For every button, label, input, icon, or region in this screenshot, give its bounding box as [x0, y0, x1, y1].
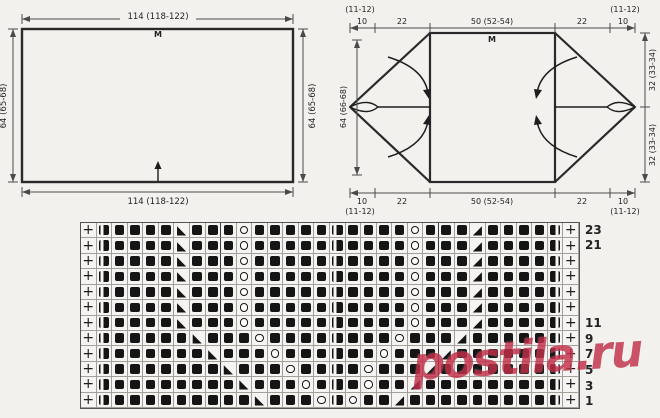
chart-cell: [268, 285, 284, 300]
filled-square: [395, 349, 405, 359]
filled-square: [348, 303, 358, 313]
filled-square: [317, 225, 327, 235]
chart-cell: [501, 300, 517, 315]
chart-cell: [159, 238, 175, 253]
filled-square: [208, 318, 218, 328]
chart-cell: [486, 393, 502, 408]
filled-square: [348, 256, 358, 266]
filled-square: [426, 303, 436, 313]
chart-cell: [377, 238, 393, 253]
filled-square: [441, 287, 451, 297]
chart-cell: [392, 285, 408, 300]
chart-cell: [252, 316, 268, 331]
half-filled-square-stripe-left: [99, 395, 110, 406]
chart-cell: [392, 254, 408, 269]
chart-cell: [517, 223, 533, 238]
open-circle: [271, 349, 280, 358]
top-size-note-left: (11-12): [345, 5, 375, 14]
filled-square: [161, 333, 171, 343]
filled-square: [441, 225, 451, 235]
filled-square: [348, 225, 358, 235]
chart-cell: [268, 223, 284, 238]
filled-square: [130, 364, 140, 374]
chart-cell: [330, 269, 346, 284]
chart-cell: [190, 346, 206, 361]
filled-square: [364, 395, 374, 405]
filled-square: [224, 380, 234, 390]
plus-edge-stitch: +: [82, 224, 94, 236]
chart-cell: [159, 331, 175, 346]
plus-edge-stitch: +: [82, 378, 94, 390]
flat-direction-arrow: [155, 161, 162, 181]
lower-right-black-triangle: ◢: [473, 225, 482, 235]
filled-square: [192, 318, 202, 328]
chart-cell: +: [81, 346, 97, 361]
chart-cell: [112, 269, 128, 284]
chart-cell: [501, 254, 517, 269]
plus-edge-stitch: +: [82, 255, 94, 267]
plus-edge-stitch: +: [565, 255, 577, 267]
chart-cell: [314, 254, 330, 269]
filled-square: [146, 395, 156, 405]
chart-row-number: [585, 253, 611, 269]
chart-cell: [486, 269, 502, 284]
chart-cell: [283, 254, 299, 269]
chart-cell: [517, 269, 533, 284]
fold-arrowheads: [423, 89, 542, 125]
chart-cell: [221, 393, 237, 408]
half-filled-square-stripe-right: [550, 287, 561, 298]
filled-square: [504, 272, 514, 282]
chart-cell: [532, 223, 548, 238]
filled-square: [504, 256, 514, 266]
filled-square: [270, 333, 280, 343]
chart-cell: ◢: [470, 300, 486, 315]
chart-cell: [455, 238, 471, 253]
chart-cell: [159, 285, 175, 300]
filled-square: [301, 349, 311, 359]
filled-square: [286, 287, 296, 297]
chart-cell: [237, 254, 253, 269]
chart-cell: [346, 377, 362, 392]
filled-square: [457, 303, 467, 313]
chart-cell: [174, 346, 190, 361]
chart-cell: [174, 331, 190, 346]
half-filled-square-stripe-right: [550, 317, 561, 328]
filled-square: [317, 303, 327, 313]
chart-cell: [159, 362, 175, 377]
chart-cell: [330, 316, 346, 331]
lower-left-black-triangle: ◣: [239, 379, 248, 389]
chart-cell: [408, 316, 424, 331]
chart-cell: [346, 300, 362, 315]
filled-square: [317, 256, 327, 266]
filled-square: [192, 380, 202, 390]
open-circle: [364, 365, 373, 374]
chart-cell: [455, 316, 471, 331]
filled-square: [130, 318, 140, 328]
filled-square: [224, 241, 234, 251]
chart-cell: [112, 300, 128, 315]
filled-square: [224, 395, 234, 405]
chart-cell: [408, 238, 424, 253]
open-circle: [349, 396, 358, 405]
filled-square: [239, 364, 249, 374]
chart-cell: [314, 238, 330, 253]
chart-cell: [330, 377, 346, 392]
chart-cell: [377, 300, 393, 315]
chart-cell: [361, 362, 377, 377]
filled-square: [270, 318, 280, 328]
filled-square: [255, 364, 265, 374]
filled-square: [535, 225, 545, 235]
chart-cell: [237, 346, 253, 361]
filled-square: [192, 256, 202, 266]
chart-cell: [221, 331, 237, 346]
chart-cell: [268, 269, 284, 284]
chart-cell: [143, 285, 159, 300]
filled-square: [364, 241, 374, 251]
filled-square: [208, 272, 218, 282]
filled-square: [255, 256, 265, 266]
chart-cell: [159, 223, 175, 238]
filled-square: [519, 318, 529, 328]
chart-cell: [377, 269, 393, 284]
lower-left-black-triangle: ◣: [193, 333, 202, 343]
chart-cell: [174, 362, 190, 377]
filled-square: [348, 272, 358, 282]
chart-cell: +: [81, 254, 97, 269]
chart-cell: [361, 269, 377, 284]
filled-square: [130, 256, 140, 266]
chart-cell: [455, 223, 471, 238]
half-filled-square-stripe-left: [99, 256, 110, 267]
chart-cell: [346, 346, 362, 361]
filled-square: [457, 272, 467, 282]
filled-square: [317, 333, 327, 343]
chart-cell: +: [563, 393, 579, 408]
filled-square: [224, 256, 234, 266]
chart-cell: [501, 285, 517, 300]
half-filled-square-stripe-left: [99, 240, 110, 251]
half-filled-square-stripe-left: [332, 379, 343, 390]
chart-cell: [97, 393, 113, 408]
chart-cell: [314, 316, 330, 331]
plus-edge-stitch: +: [82, 394, 94, 406]
filled-square: [457, 225, 467, 235]
chart-cell: [128, 362, 144, 377]
chart-cell: [501, 316, 517, 331]
chart-cell: [486, 285, 502, 300]
chart-cell: [392, 362, 408, 377]
chart-cell: [408, 300, 424, 315]
chart-cell: [299, 316, 315, 331]
filled-square: [364, 225, 374, 235]
chart-cell: [252, 300, 268, 315]
chart-cell: [346, 393, 362, 408]
filled-square: [286, 303, 296, 313]
lower-right-black-triangle: ◢: [473, 256, 482, 266]
chart-cell: [486, 238, 502, 253]
filled-square: [395, 241, 405, 251]
open-circle: [411, 318, 420, 327]
filled-square: [348, 364, 358, 374]
filled-square: [426, 318, 436, 328]
chart-cell: [143, 346, 159, 361]
chart-cell: [377, 254, 393, 269]
chart-cell: [532, 238, 548, 253]
half-filled-square-stripe-left: [332, 333, 343, 344]
filled-square: [379, 256, 389, 266]
open-circle: [240, 272, 249, 281]
chart-cell: [268, 377, 284, 392]
chart-cell: [330, 285, 346, 300]
plus-edge-stitch: +: [565, 286, 577, 298]
chart-cell: +: [563, 269, 579, 284]
lower-left-black-triangle: ◣: [177, 241, 186, 251]
filled-square: [255, 241, 265, 251]
filled-square: [441, 272, 451, 282]
chart-cell: [268, 393, 284, 408]
lower-left-black-triangle: ◣: [177, 318, 186, 328]
filled-square: [457, 395, 467, 405]
filled-square: [301, 395, 311, 405]
filled-square: [115, 241, 125, 251]
filled-square: [519, 225, 529, 235]
chart-cell: [314, 393, 330, 408]
filled-square: [146, 225, 156, 235]
flat-rectangle-outline: [22, 29, 293, 182]
chart-cell: [377, 377, 393, 392]
chart-cell: [97, 377, 113, 392]
filled-square: [364, 333, 374, 343]
chart-cell: [314, 362, 330, 377]
top-dim-10-right: 10: [618, 17, 628, 26]
chart-cell: [377, 362, 393, 377]
filled-square: [348, 318, 358, 328]
filled-square: [224, 349, 234, 359]
chart-cell: [361, 393, 377, 408]
chart-cell: [190, 316, 206, 331]
filled-square: [379, 287, 389, 297]
chart-cell: [143, 393, 159, 408]
filled-square: [317, 272, 327, 282]
chart-cell: [206, 377, 222, 392]
chart-cell: [206, 393, 222, 408]
filled-square: [161, 225, 171, 235]
filled-square: [270, 287, 280, 297]
chart-cell: [346, 223, 362, 238]
filled-square: [115, 318, 125, 328]
chart-cell: [221, 254, 237, 269]
chart-cell: [190, 285, 206, 300]
filled-square: [504, 318, 514, 328]
filled-square: [161, 303, 171, 313]
chart-cell: [408, 285, 424, 300]
chart-cell: [237, 300, 253, 315]
filled-square: [301, 272, 311, 282]
chart-cell: [190, 238, 206, 253]
half-filled-square-stripe-left: [99, 271, 110, 282]
flat-width-bottom-label: 114 (118-122): [127, 197, 188, 207]
filled-square: [239, 333, 249, 343]
filled-square: [348, 380, 358, 390]
filled-square: [224, 272, 234, 282]
top-dim-50: 50 (52-54): [471, 17, 513, 26]
filled-square: [130, 349, 140, 359]
flat-schematic: 114 (118-122) M 114 (118-122) 64 (65-68)…: [0, 0, 330, 212]
chart-cell: [206, 269, 222, 284]
filled-square: [208, 241, 218, 251]
chart-cell: [159, 300, 175, 315]
chart-cell: [299, 285, 315, 300]
chart-cell: [206, 331, 222, 346]
filled-square: [301, 241, 311, 251]
chart-cell: [128, 300, 144, 315]
filled-square: [301, 256, 311, 266]
open-circle: [240, 318, 249, 327]
chart-cell: ◣: [221, 362, 237, 377]
filled-square: [115, 333, 125, 343]
filled-square: [146, 318, 156, 328]
chart-row-number: 21: [585, 238, 611, 254]
chart-cell: [97, 362, 113, 377]
filled-square: [301, 364, 311, 374]
chart-cell: [330, 346, 346, 361]
filled-square: [426, 256, 436, 266]
filled-square: [426, 241, 436, 251]
chart-cell: [346, 316, 362, 331]
filled-square: [130, 333, 140, 343]
chart-cell: ◢: [470, 238, 486, 253]
chart-cell: [143, 331, 159, 346]
chart-cell: [346, 331, 362, 346]
filled-square: [504, 241, 514, 251]
chart-cell: [112, 393, 128, 408]
chart-cell: [221, 377, 237, 392]
lower-right-black-triangle: ◢: [473, 318, 482, 328]
filled-square: [192, 225, 202, 235]
chart-cell: [330, 331, 346, 346]
chart-cell: [143, 238, 159, 253]
chart-cell: [128, 238, 144, 253]
lower-left-black-triangle: ◣: [177, 271, 186, 281]
filled-square: [348, 333, 358, 343]
chart-cell: [97, 300, 113, 315]
top-dim-22-right: 22: [577, 17, 587, 26]
half-filled-square-stripe-right: [550, 240, 561, 251]
bottom-size-note-right: (11-12): [610, 207, 640, 216]
chart-cell: ◣: [206, 346, 222, 361]
chart-cell: ◢: [470, 254, 486, 269]
filled-square: [395, 303, 405, 313]
chart-cell: [206, 362, 222, 377]
chart-cell: [330, 238, 346, 253]
open-circle: [255, 334, 264, 343]
filled-square: [270, 303, 280, 313]
filled-square: [161, 272, 171, 282]
flat-left-dimension: [8, 29, 18, 182]
filled-square: [364, 256, 374, 266]
chart-cell: [377, 331, 393, 346]
filled-square: [348, 349, 358, 359]
chart-cell: [330, 223, 346, 238]
chart-cell: [486, 300, 502, 315]
lower-right-black-triangle: ◢: [473, 271, 482, 281]
chart-cell: [377, 316, 393, 331]
chart-cell: [252, 331, 268, 346]
filled-square: [270, 395, 280, 405]
chart-cell: [314, 346, 330, 361]
chart-cell: [97, 285, 113, 300]
filled-square: [519, 241, 529, 251]
chart-cell: [221, 223, 237, 238]
chart-cell: [486, 316, 502, 331]
chart-cell: [252, 285, 268, 300]
chart-cell: [330, 393, 346, 408]
filled-square: [224, 225, 234, 235]
chart-cell: [283, 285, 299, 300]
chart-cell: [517, 285, 533, 300]
filled-square: [115, 225, 125, 235]
chart-cell: [314, 331, 330, 346]
filled-square: [286, 395, 296, 405]
lower-right-black-triangle: ◢: [473, 302, 482, 312]
bottom-dim-10-right: 10: [618, 197, 628, 206]
filled-square: [410, 395, 420, 405]
chart-cell: [517, 238, 533, 253]
open-circle: [411, 257, 420, 266]
open-circle: [411, 241, 420, 250]
filled-square: [535, 272, 545, 282]
chart-cell: [361, 238, 377, 253]
filled-square: [177, 333, 187, 343]
chart-cell: +: [563, 285, 579, 300]
filled-square: [348, 287, 358, 297]
chart-cell: [128, 254, 144, 269]
filled-square: [130, 272, 140, 282]
filled-square: [364, 318, 374, 328]
open-circle: [240, 226, 249, 235]
chart-cell: [128, 269, 144, 284]
filled-square: [395, 256, 405, 266]
chart-cell: [143, 316, 159, 331]
chart-cell: [361, 377, 377, 392]
chart-cell: [221, 346, 237, 361]
chart-cell: [314, 377, 330, 392]
filled-square: [379, 318, 389, 328]
filled-square: [457, 241, 467, 251]
filled-square: [488, 287, 498, 297]
filled-square: [192, 241, 202, 251]
filled-square: [317, 364, 327, 374]
chart-cell: [252, 362, 268, 377]
filled-square: [208, 225, 218, 235]
filled-square: [379, 225, 389, 235]
chart-cell: [252, 346, 268, 361]
chart-cell: [97, 316, 113, 331]
flat-bottom-dimension: [22, 187, 293, 197]
chart-cell: [361, 223, 377, 238]
filled-square: [441, 318, 451, 328]
chart-cell: [299, 300, 315, 315]
open-circle: [317, 396, 326, 405]
open-circle: [395, 334, 404, 343]
chart-cell: [392, 377, 408, 392]
chart-cell: [377, 223, 393, 238]
bottom-dim-10-left: 10: [357, 197, 367, 206]
chart-cell: [112, 316, 128, 331]
